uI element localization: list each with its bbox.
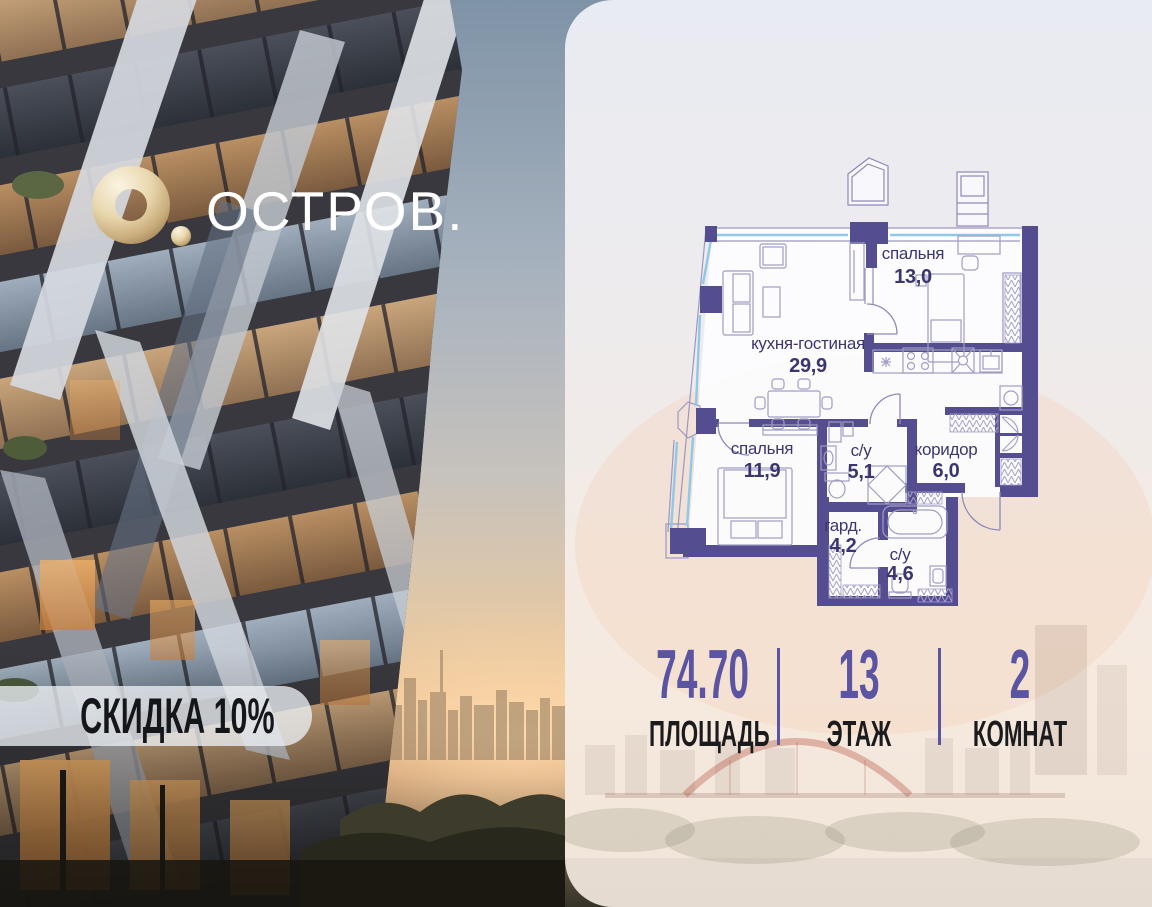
listing-card[interactable]: спальня 13,0 кухня-гостиная 29,9 спальня… xyxy=(565,0,1152,907)
svg-text:коридор: коридор xyxy=(915,440,978,459)
stat-rooms: 2 КОМНАТ xyxy=(941,641,1099,752)
svg-text:4,6: 4,6 xyxy=(887,563,914,585)
floorplan: спальня 13,0 кухня-гостиная 29,9 спальня… xyxy=(655,145,1055,680)
stat-floor-label: ЭТАЖ xyxy=(810,716,908,752)
vent-structures xyxy=(848,158,988,226)
discount-badge: СКИДКА 10% xyxy=(0,686,312,746)
svg-text:спальня: спальня xyxy=(731,439,794,458)
stat-rooms-value: 2 xyxy=(978,641,1062,708)
stat-floor-value: 13 xyxy=(817,641,901,708)
discount-badge-text: СКИДКА 10% xyxy=(80,691,274,741)
svg-text:6,0: 6,0 xyxy=(933,460,960,482)
stat-rooms-label: КОМНАТ xyxy=(971,716,1069,752)
svg-text:4,2: 4,2 xyxy=(830,535,857,557)
svg-text:гард.: гард. xyxy=(824,516,862,535)
stat-area-label: ПЛОЩАДЬ xyxy=(649,716,747,752)
room-label-wardrobe: гард. 4,2 xyxy=(824,516,862,557)
svg-text:11,9: 11,9 xyxy=(744,460,781,482)
svg-text:спальня: спальня xyxy=(882,244,945,263)
brand-logo: ОСТРОВ. xyxy=(88,158,508,258)
svg-text:кухня-гостиная: кухня-гостиная xyxy=(751,334,865,353)
svg-text:29,9: 29,9 xyxy=(789,355,827,377)
listing-card-screenshot: ОСТРОВ. СКИДКА 10% xyxy=(0,0,1152,907)
svg-text:с/у: с/у xyxy=(851,441,873,460)
logo-o-icon xyxy=(88,158,200,254)
stat-area-value: 74.70 xyxy=(656,641,740,708)
stat-floor: 13 ЭТАЖ xyxy=(780,641,938,752)
svg-text:с/у: с/у xyxy=(890,545,912,564)
stat-area: 74.70 ПЛОЩАДЬ xyxy=(619,641,777,752)
svg-text:5,1: 5,1 xyxy=(848,461,875,483)
room-label-bathroom-2: с/у 4,6 xyxy=(887,545,914,585)
stats-row: 74.70 ПЛОЩАДЬ 13 ЭТАЖ 2 КОМНАТ xyxy=(565,641,1152,752)
svg-text:13,0: 13,0 xyxy=(894,266,932,288)
room-label-bathroom-1: с/у 5,1 xyxy=(848,441,875,483)
logo-wordmark: ОСТРОВ. xyxy=(206,184,465,239)
